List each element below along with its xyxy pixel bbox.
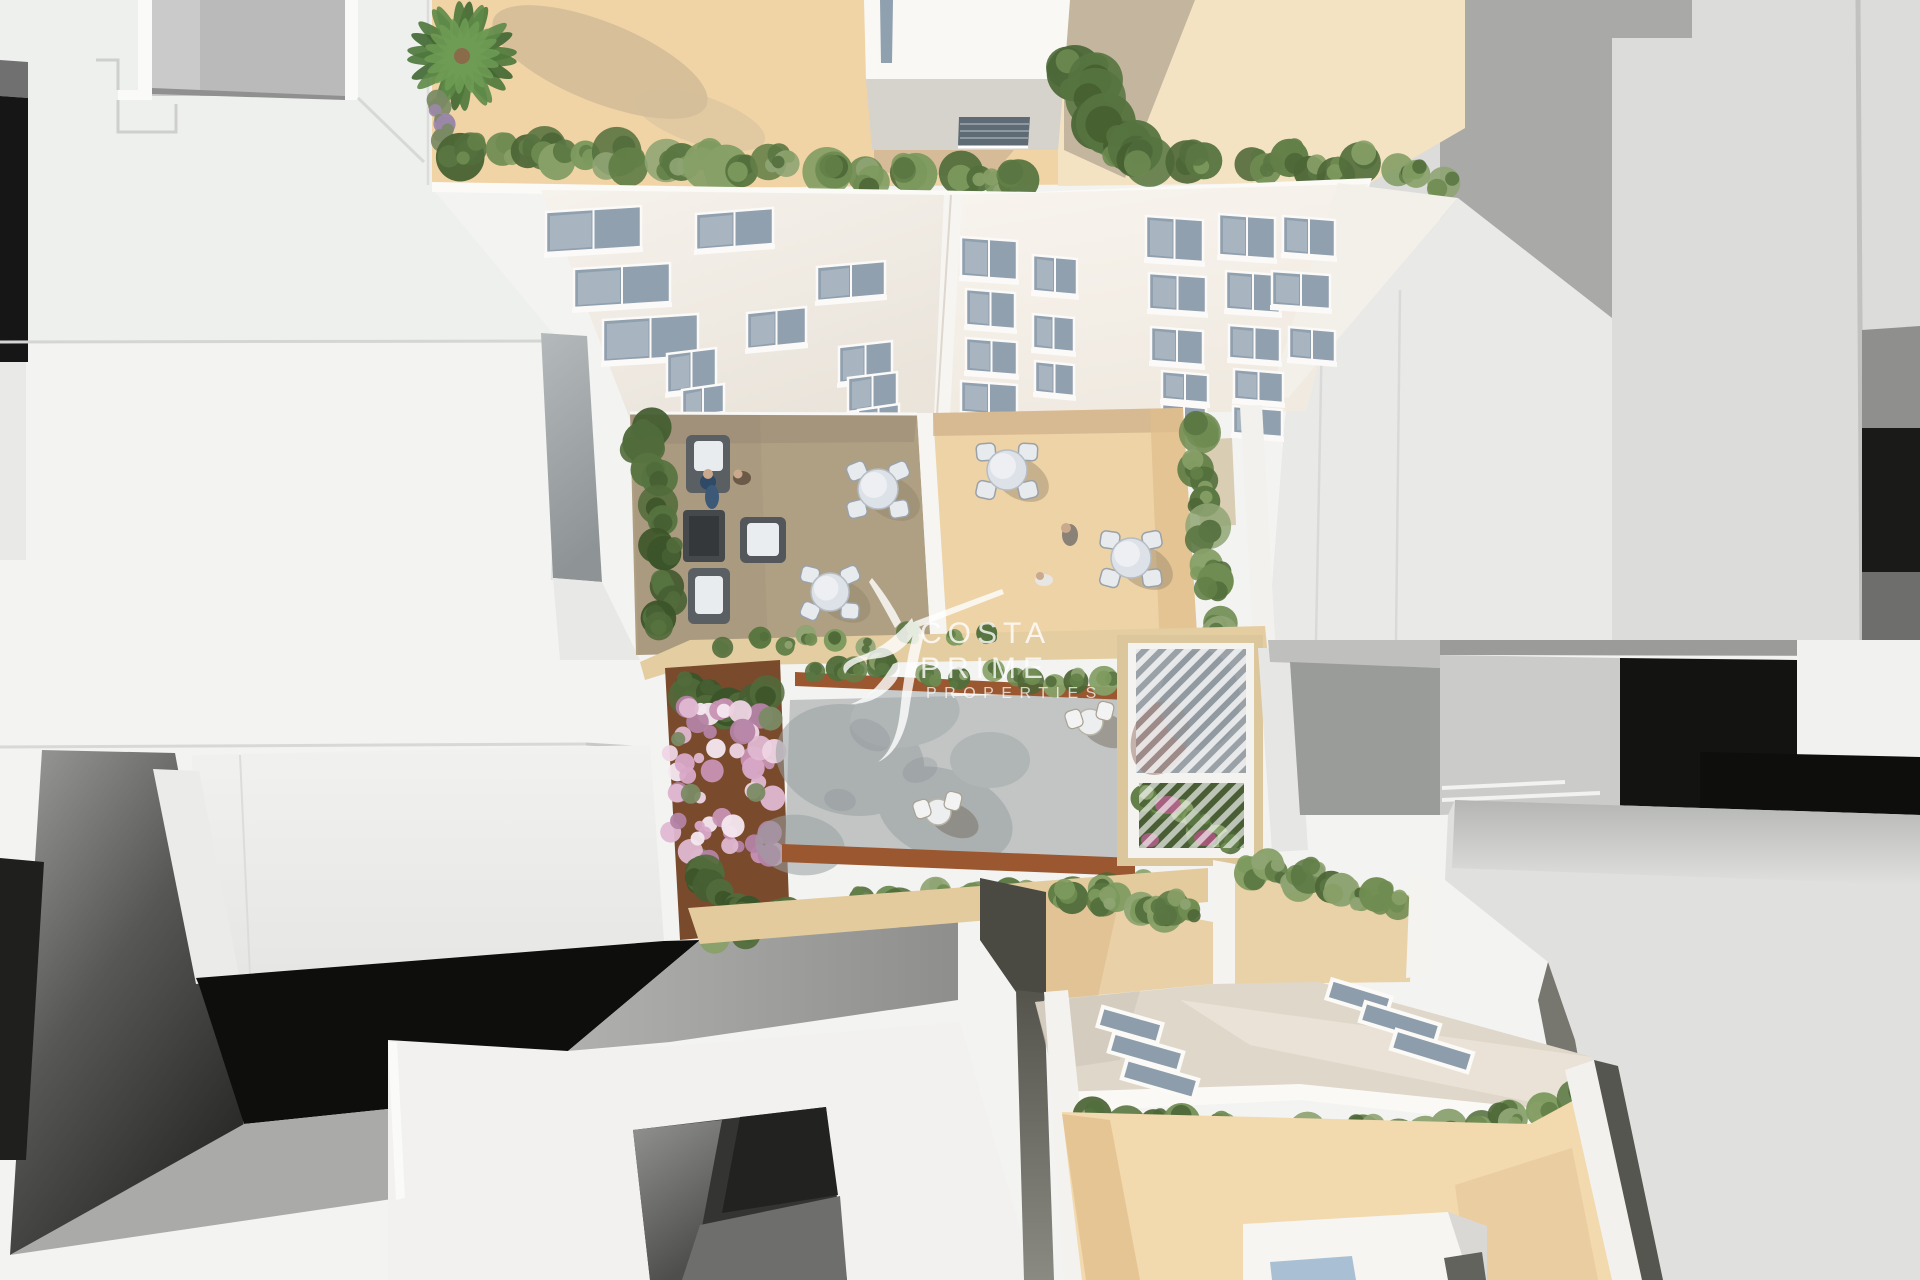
svg-text:PRIME: PRIME bbox=[920, 652, 1050, 685]
svg-text:COSTA: COSTA bbox=[920, 617, 1051, 650]
svg-text:PROPERTIES: PROPERTIES bbox=[926, 685, 1104, 702]
